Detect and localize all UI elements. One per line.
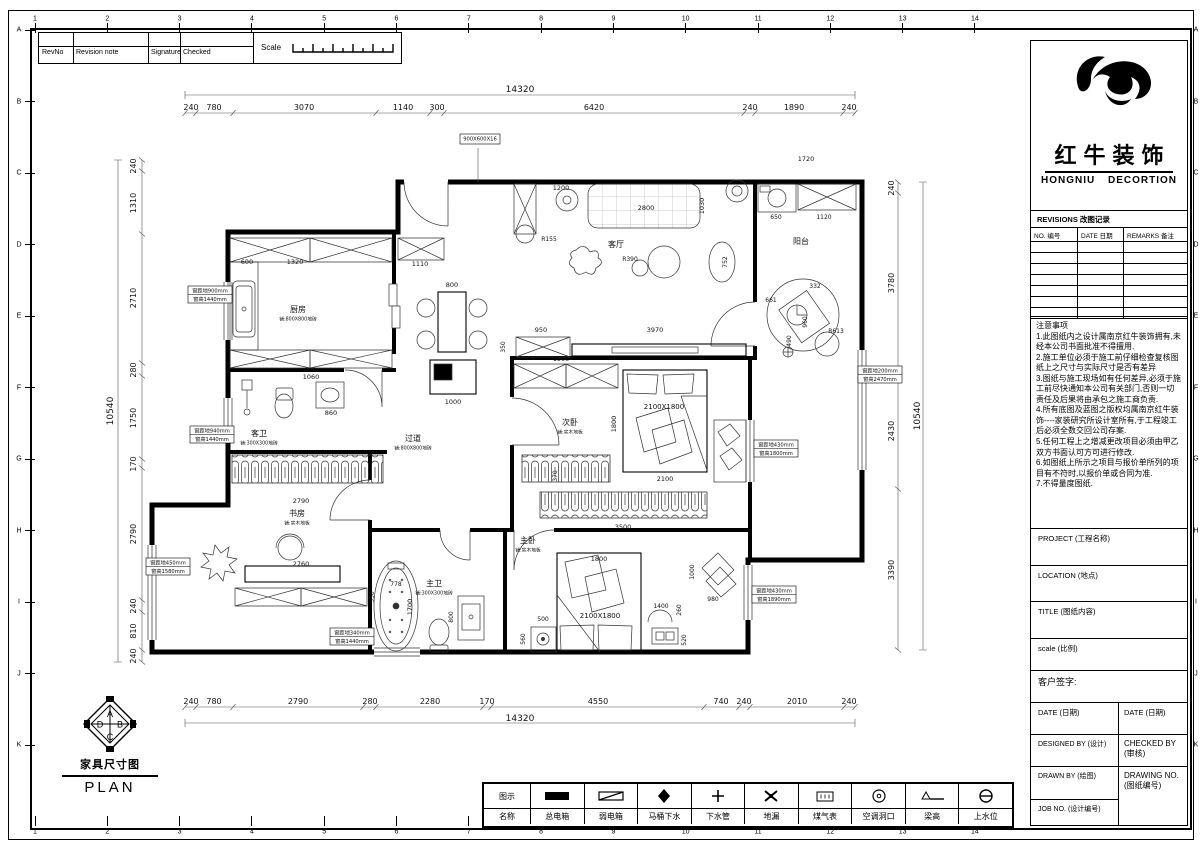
plan-title-en: PLAN [62,779,158,796]
grid-row-label-right: C [1193,170,1198,177]
window-spec-text: 窗距地430mm [756,587,792,595]
compass-letter-d: D [97,720,104,730]
grid-row-label-left: J [17,670,21,677]
legend-name: 梁高 [905,808,959,824]
kitchen-fixtures [230,262,258,350]
project-label: PROJECT (工程名称) [1038,534,1110,543]
window-spec-text: 窗高1440mm [335,637,369,645]
grid-row-label-left: D [16,241,21,248]
date-row: DATE (日期) DATE (日期) [1031,703,1187,735]
note-line: 4.所有底图及蓝图之版权均属南京红牛装饰----家装研究所设计室所有,于工程竣工… [1036,405,1182,437]
dimension-text: 4550 [588,697,608,706]
dimension-text: 2100X1800 [644,403,684,411]
grid-col-label-top: 10 [682,16,690,23]
room-label: 客厅 [608,239,624,249]
dimension-text: 240 [183,697,198,706]
drawn-drawing-row: DRAWN BY (绘图) JOB NO. (设计编号) DRAWING NO.… [1031,767,1187,825]
grid-row-label-left: G [16,456,21,463]
master-bathroom-fixtures [374,561,484,652]
dimension-text: 10540 [106,396,116,425]
floorplan-blueprint-page: { "grid": { "cols": ["1","2","3","4","5"… [0,0,1200,848]
window-spec-text: 窗距地450mm [150,559,186,567]
room-floor-note: 铺:实木地板 [284,520,310,527]
note-line: 7.不得量度图纸. [1036,479,1182,490]
grid-col-label-top: 13 [899,16,907,23]
room-label: 阳台 [793,236,809,246]
note-line: 2.施工单位必须于施工前仔细检查复核图纸上之尺寸与实际尺寸是否有差异 [1036,353,1182,374]
dimension-text: 1310 [129,193,138,213]
dimension-text: 950 [535,326,547,334]
dimension-text: 1200 [553,184,570,192]
grid-row-label-right: K [1194,742,1199,749]
room-label: 过道 [405,433,421,443]
scale-field: scale (比例) [1031,639,1187,671]
study-furniture [201,534,340,582]
dimension-text: 650 [770,214,782,221]
legend-header-symbol: 图示 [484,784,530,808]
dimension-text: 1700 [406,599,414,616]
legend-name: 空调洞口 [851,808,905,824]
grid-col-label-bottom: 11 [754,829,761,836]
grid-col-label-top: 8 [539,16,543,23]
dimension-text: 2790 [288,697,308,706]
dimension-text: 240 [183,103,198,112]
plan-title-cn: 家具尺寸图 [62,756,158,777]
dimension-text: 1060 [303,373,320,381]
dimension-text: 10540 [913,401,923,430]
bull-logo-icon [1049,45,1169,131]
window-spec-text: 窗高1440mm [193,295,227,303]
checked-by-label: CHECKED BY (审核) [1118,735,1187,766]
revisions-col-date: DATE 日期 [1077,228,1123,241]
company-name-en-2: DECORTION [1108,175,1177,186]
grid-col-label-bottom: 14 [971,829,979,836]
drain-pipe-icon [691,784,745,808]
revisions-empty-row [1031,286,1187,297]
dimension-text: 280 [362,697,377,706]
dimension-text: 1110 [412,260,429,268]
living-room-furniture [516,180,748,356]
grid-row-label-right: B [1194,98,1199,105]
dimension-text: 2760 [293,560,310,568]
dimension-text: 240 [841,103,856,112]
revisions-empty-row [1031,253,1187,264]
room-label: 厨房 [290,304,306,314]
grid-col-label-top: 4 [250,16,254,23]
dimension-text: 550 [369,591,376,603]
designed-checked-row: DESIGNED BY (设计) CHECKED BY (审核) [1031,735,1187,767]
window-spec-text: 900X600X16 [463,137,497,143]
dimension-chains [114,91,927,727]
legend-header-name: 名称 [484,808,530,824]
dimension-text: 14320 [506,85,535,95]
dimension-text: 500 [537,616,549,623]
grid-col-label-bottom: 8 [539,829,543,836]
revisions-empty-row [1031,297,1187,308]
compass-icon: A B C D [82,696,138,752]
grid-row-label-left: E [17,313,22,320]
compass-letter-c: C [107,732,114,742]
grid-col-label-top: 3 [178,16,182,23]
grid-col-label-bottom: 2 [105,829,109,836]
revisions-title: REVISIONS 改图记录 [1031,211,1187,228]
legend-table: 图示 名称 总电箱 弱电箱 马桶下水 下水管 地漏 煤气表 空调洞口 梁高 上水… [482,782,1014,828]
grid-row-label-left: B [17,98,22,105]
compass-letter-a: A [107,709,113,719]
compass-letter-b: B [117,720,123,730]
grid-col-label-bottom: 9 [611,829,615,836]
grid-col-label-top: 11 [754,16,761,23]
window-spec-text: 窗距地940mm [194,427,230,435]
grid-row-label-left: C [16,170,21,177]
window-spec-text: 窗高1580mm [151,567,185,575]
dimension-text: R613 [828,328,844,335]
revisions-empty-row [1031,264,1187,275]
grid-row-label-right: H [1193,527,1198,534]
dimension-text: 280 [129,362,138,377]
dimension-text: R390 [622,256,638,263]
grid-col-label-bottom: 3 [178,829,182,836]
dimension-text: 490 [786,335,793,347]
date-right-label: DATE (日期) [1118,703,1187,734]
dimension-text: 6420 [584,103,604,112]
dimension-text: R155 [541,236,557,243]
dimension-text: 240 [129,158,138,173]
dining-table-set [417,292,487,394]
window-spec-text: 窗高1440mm [195,435,229,443]
dimension-text: 860 [325,409,337,417]
dimension-text: 2800 [638,204,655,212]
dimension-text: 3500 [615,523,632,531]
window-spec-text: 窗高2470mm [863,375,897,383]
room-label: 主卧 [520,535,536,545]
dimension-text: 3780 [887,273,896,293]
dimension-text: 560 [520,633,527,645]
dimension-text: 800 [448,611,455,623]
dimension-text: 14320 [506,714,535,724]
date-left-label: DATE (日期) [1031,703,1118,734]
room-floor-note: 铺:800X800地砖 [279,316,317,323]
main-electric-box-icon [530,784,584,808]
revisions-col-remarks: REMARKS 备注 [1123,228,1187,241]
dimension-text: 2710 [129,288,138,308]
dimension-text: 240 [742,103,757,112]
dimension-text: 740 [713,697,728,706]
grid-col-label-bottom: 5 [322,829,326,836]
dimension-text: 240 [887,180,896,195]
grid-col-label-top: 2 [105,16,109,23]
grid-col-label-bottom: 4 [250,829,254,836]
dimension-text: 661 [765,297,777,304]
grid-row-label-left: F [17,384,21,391]
grid-row-label-right: J [1194,670,1198,677]
notes-box: 注意事项 1.此图纸内之设计属南京红牛装饰拥有,未经本公司书面批准不得擅用. 2… [1031,317,1187,529]
master-bedroom-furniture [531,553,736,652]
drawn-by-label: DRAWN BY (绘图) [1031,767,1118,800]
project-field: PROJECT (工程名称) [1031,529,1187,566]
dimension-text: 332 [809,283,821,290]
room-floor-note: 铺:300X300地砖 [415,590,453,597]
dimension-text: 520 [681,634,688,646]
job-no-label: JOB NO. (设计编号) [1031,800,1118,814]
revisions-empty-row [1031,275,1187,286]
client-signature-label: 客户签字: [1038,677,1077,687]
legend-name: 煤气表 [798,808,852,824]
grid-row-label-right: F [1194,384,1198,391]
dimension-text: 2100 [657,475,674,483]
dimension-text: 1890 [784,103,804,112]
dimension-text: 1000 [689,564,696,579]
title-field: TITLE (图纸内容) [1031,602,1187,639]
dimension-text: 2430 [887,421,896,441]
dimension-text: 960 [802,316,809,328]
dimension-text: 240 [841,697,856,706]
legend-name: 总电箱 [530,808,584,824]
secondary-bedroom-furniture [623,370,746,482]
floor-drain-icon [744,784,798,808]
dimension-text: 2280 [420,697,440,706]
dimension-text: 2010 [787,697,807,706]
grid-row-label-left: H [16,527,21,534]
dimension-text: 170 [129,456,138,471]
grid-row-label-right: G [1193,456,1198,463]
dimension-text: 3970 [647,326,664,334]
title-block-panel: 红牛装饰 HONGNIU DECORTION REVISIONS 改图记录 NO… [1030,40,1188,826]
grid-row-label-right: D [1193,241,1198,248]
dimension-text: 780 [206,697,221,706]
title-label: TITLE (图纸内容) [1038,607,1096,616]
grid-col-label-bottom: 7 [467,829,471,836]
room-label: 书房 [289,508,305,518]
legend-name: 弱电箱 [584,808,638,824]
room-label: 客卫 [251,428,267,438]
grid-row-label-left: I [18,599,20,606]
dimension-text: 1750 [129,408,138,428]
dimension-text: 300 [429,103,444,112]
dimension-text: 240 [129,648,138,663]
grid-row-label-left: A [17,27,22,34]
dimension-text: 2100X1800 [580,612,620,620]
room-floor-note: 铺:300X300地砖 [240,440,278,447]
gas-meter-icon [798,784,852,808]
dimension-text: 2790 [293,497,310,505]
dimension-text: 1800 [591,555,608,563]
dimension-text: 1140 [393,103,413,112]
location-label: LOCATION (地点) [1038,571,1098,580]
dimension-text: 3390 [887,560,896,580]
dimension-text: 350 [500,341,507,353]
grid-col-label-top: 9 [611,16,615,23]
location-field: LOCATION (地点) [1031,566,1187,602]
dimension-text: 1400 [653,603,668,610]
dimension-text: 778 [390,581,402,588]
grid-row-label-right: I [1195,599,1197,606]
dimension-text: 1320 [287,258,304,266]
grid-col-label-top: 12 [826,16,834,23]
legend-name: 上水位 [958,808,1012,824]
dimension-text: 170 [479,697,494,706]
dimension-text: 1030 [698,198,706,215]
window-spec-text: 窗距地430mm [758,441,794,449]
toilet-drain-icon [637,784,691,808]
floor-plan-drawing: 1432024078030701140300642024018902401432… [30,28,1022,828]
client-signature-field: 客户签字: [1031,671,1187,703]
room-floor-note: 铺:实木地板 [515,547,541,554]
designed-by-label: DESIGNED BY (设计) [1031,735,1118,766]
window-spec-text: 窗高1890mm [757,595,791,603]
grid-col-label-top: 1 [33,16,37,23]
grid-row-label-right: A [1194,27,1199,34]
note-line: 1.此图纸内之设计属南京红牛装饰拥有,未经本公司书面批准不得擅用. [1036,332,1182,353]
window-spec-text: 窗距地900mm [192,287,228,295]
ac-hole-icon [851,784,905,808]
dimension-text: 980 [707,596,719,603]
plan-title-block: A B C D 家具尺寸图 PLAN [62,696,158,796]
window-spec-text: 窗高1800mm [759,449,793,457]
revisions-col-no: NO. 编号 [1031,228,1077,241]
dimension-text: 800 [446,281,458,289]
note-line: 6.如图纸上所示之项目与报价单所列的项目有不符时,以报价单或合同为准. [1036,458,1182,479]
drawing-no-label: DRAWING NO. (图纸编号) [1118,767,1187,825]
company-name-cn: 红牛装饰 [1045,138,1172,173]
dimension-text: 810 [129,623,138,638]
company-logo-box: 红牛装饰 HONGNIU DECORTION [1031,41,1187,211]
water-supply-icon [958,784,1012,808]
grid-col-label-top: 6 [395,16,399,23]
note-line: 5.任何工程上之增减更改项目必须由甲乙双方书面认可方可进行修改. [1036,437,1182,458]
room-label: 次卧 [562,417,578,427]
company-name-en-1: HONGNIU [1041,175,1095,186]
window-spec-text: 窗距地340mm [334,629,370,637]
room-floor-note: 铺:800X800地砖 [394,445,432,452]
dimension-text: 2790 [129,524,138,544]
dimension-text: 240 [129,598,138,613]
dimension-text: 752 [722,256,729,268]
grid-col-label-top: 7 [467,16,471,23]
revisions-table: REVISIONS 改图记录 NO. 编号 DATE 日期 REMARKS 备注 [1031,211,1187,317]
legend-name: 下水管 [691,808,745,824]
window-spec-text: 窗距地200mm [862,367,898,375]
grid-col-label-bottom: 12 [826,829,834,836]
dimension-text: 1800 [610,416,618,433]
grid-col-label-bottom: 6 [395,829,399,836]
room-floor-note: 铺:实木地板 [557,429,583,436]
grid-row-label-right: E [1194,313,1199,320]
dimension-text: 260 [676,604,683,616]
beam-height-icon [905,784,959,808]
cabinet-hatch-boxes [230,184,856,606]
dimension-text: 1120 [816,214,831,221]
dimension-text: 1000 [445,398,462,406]
scale-field-label: scale (比例) [1038,644,1078,653]
dimension-text: 240 [736,697,751,706]
dimension-text: 780 [206,103,221,112]
dimension-text: 3070 [294,103,314,112]
revisions-empty-row [1031,242,1187,253]
weak-electric-box-icon [584,784,638,808]
dimension-text: 600 [241,258,253,266]
legend-name: 地漏 [744,808,798,824]
grid-row-label-left: K [17,742,22,749]
dimension-text: 370 [552,470,559,482]
dimension-text: 1720 [798,155,815,163]
dimension-text: 1500 [553,355,570,363]
notes-title: 注意事项 [1036,321,1182,332]
note-line: 3.图纸与施工现场如有任何差异,必须于施工前尽快通知本公司有关部门,否则一切责任… [1036,374,1182,406]
legend-name: 马桶下水 [637,808,691,824]
grid-col-label-bottom: 13 [899,829,907,836]
grid-col-label-bottom: 1 [33,829,37,836]
grid-col-label-top: 5 [322,16,326,23]
grid-col-label-bottom: 10 [682,829,690,836]
grid-col-label-top: 14 [971,16,979,23]
room-label: 主卫 [426,578,442,588]
